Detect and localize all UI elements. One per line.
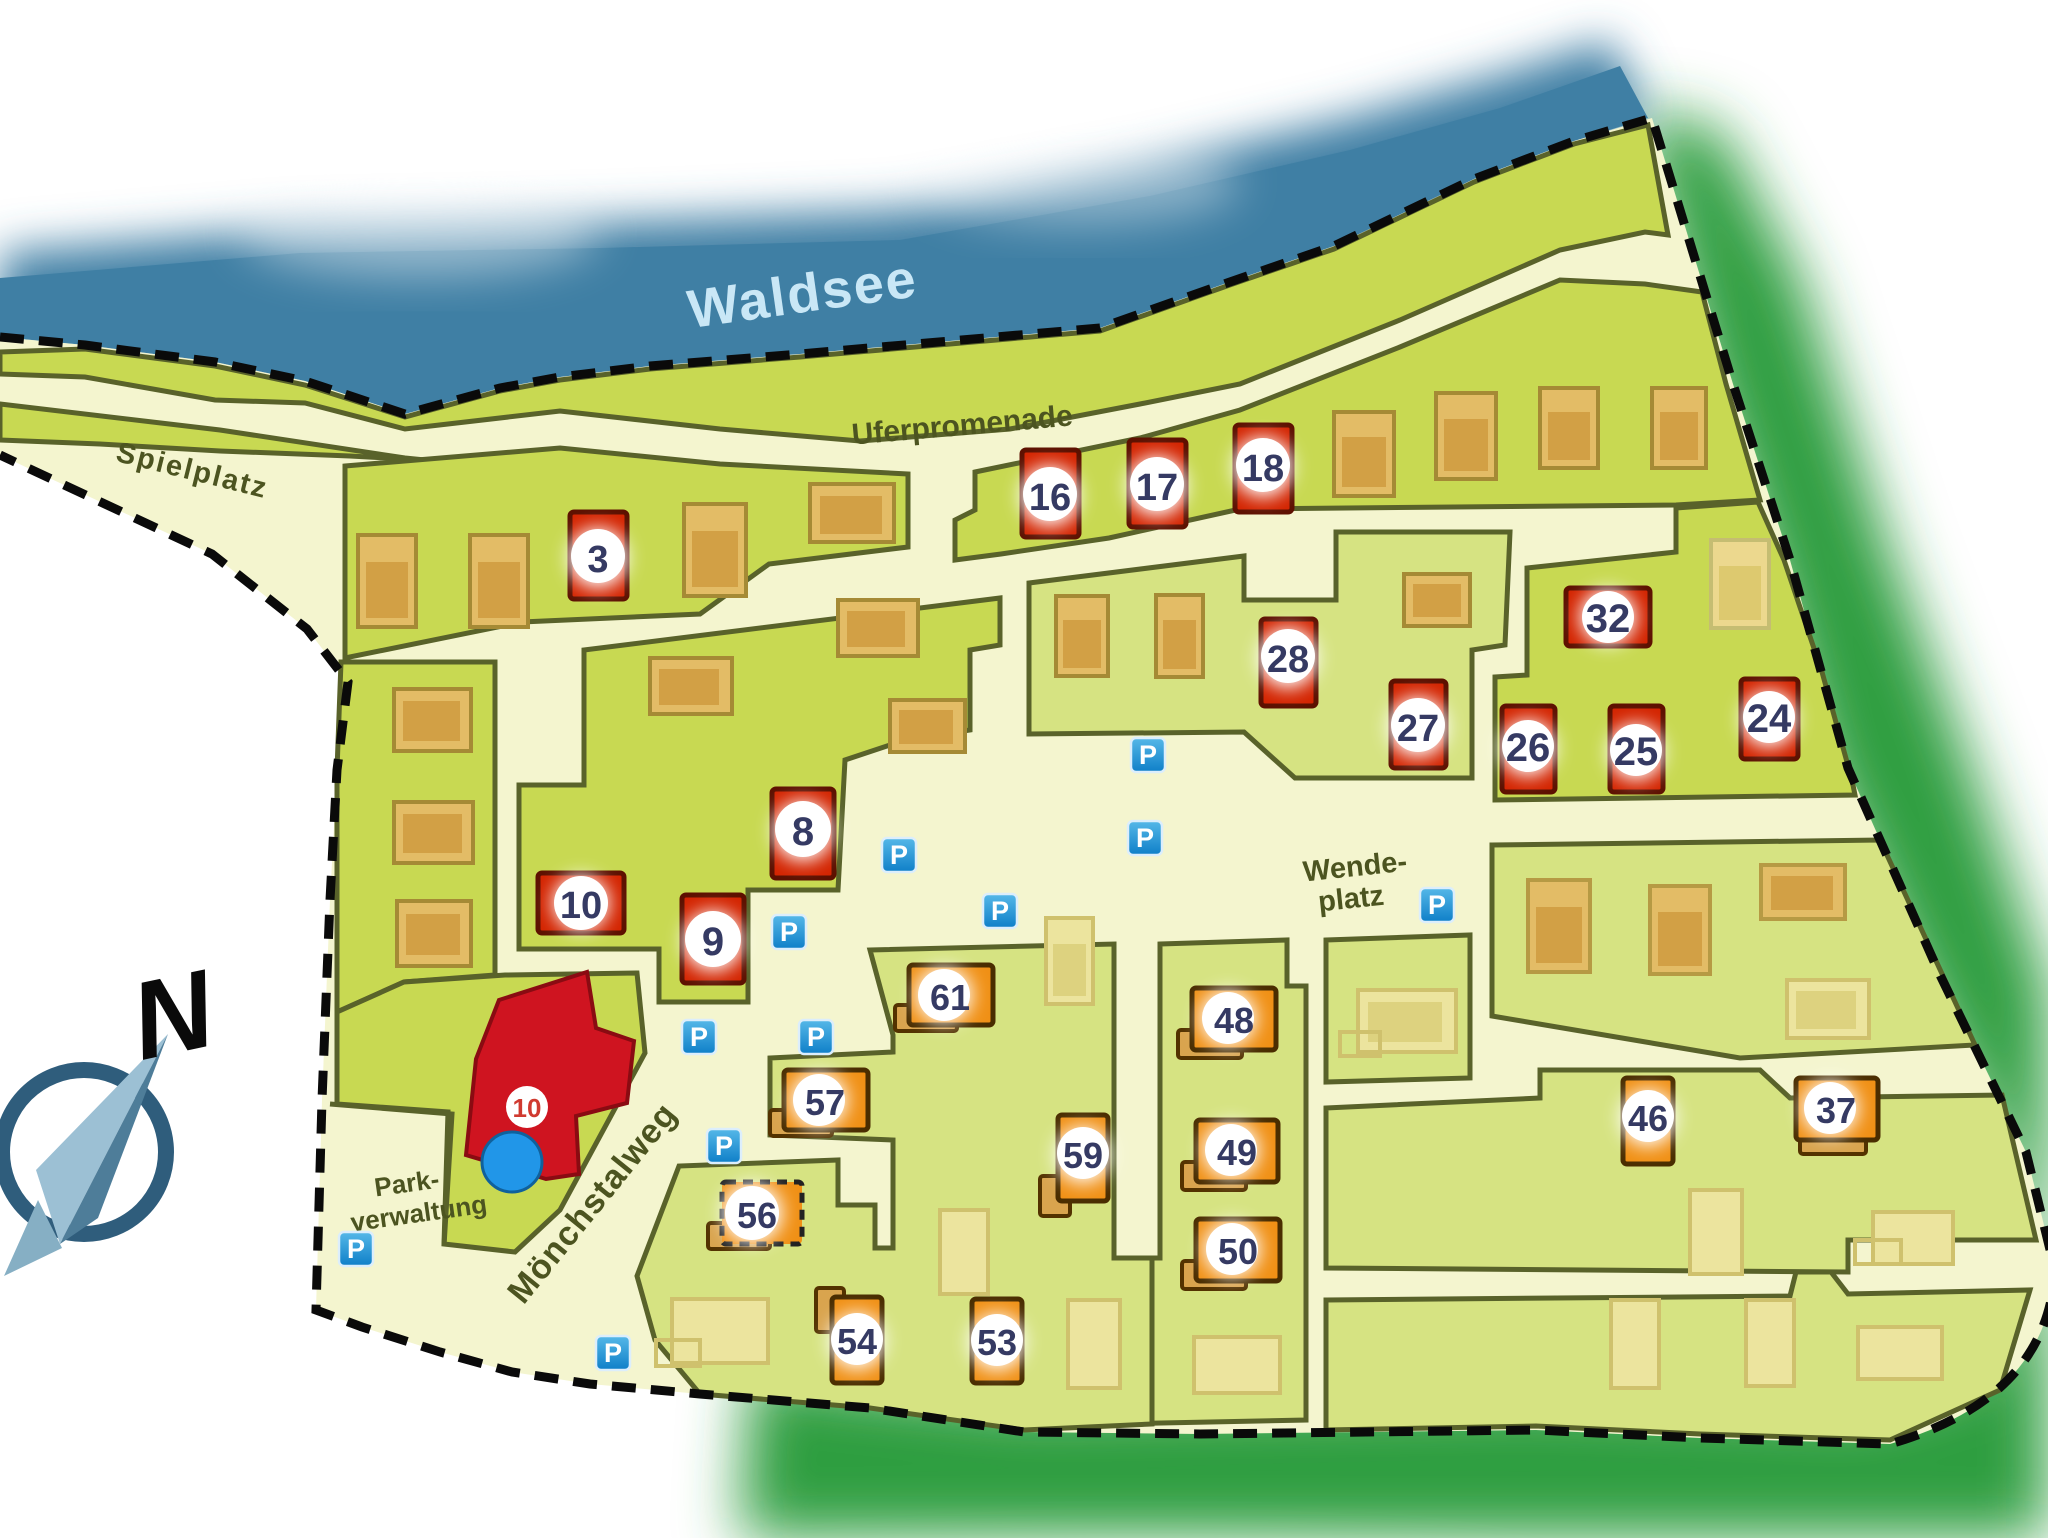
- svg-text:48: 48: [1214, 1000, 1254, 1041]
- svg-text:27: 27: [1397, 708, 1439, 750]
- svg-text:25: 25: [1614, 730, 1659, 774]
- svg-text:53: 53: [977, 1322, 1017, 1363]
- svg-text:P: P: [1428, 890, 1446, 920]
- svg-text:49: 49: [1217, 1132, 1257, 1173]
- svg-text:P: P: [347, 1234, 365, 1264]
- svg-text:56: 56: [737, 1195, 777, 1236]
- svg-text:3: 3: [587, 539, 608, 581]
- svg-text:P: P: [780, 917, 798, 947]
- svg-text:61: 61: [930, 977, 970, 1018]
- svg-text:16: 16: [1029, 477, 1071, 519]
- svg-text:54: 54: [837, 1321, 877, 1362]
- svg-text:17: 17: [1136, 467, 1178, 509]
- svg-text:59: 59: [1063, 1135, 1103, 1176]
- svg-text:46: 46: [1628, 1098, 1668, 1139]
- svg-text:P: P: [715, 1131, 733, 1161]
- svg-text:10: 10: [513, 1093, 542, 1123]
- svg-text:32: 32: [1586, 597, 1631, 641]
- svg-text:P: P: [690, 1022, 708, 1052]
- svg-text:P: P: [890, 840, 908, 870]
- svg-text:P: P: [991, 896, 1009, 926]
- svg-text:37: 37: [1816, 1090, 1856, 1131]
- svg-text:P: P: [604, 1338, 622, 1368]
- svg-text:9: 9: [702, 920, 724, 964]
- svg-text:P: P: [1136, 823, 1154, 853]
- svg-text:50: 50: [1218, 1231, 1258, 1272]
- svg-text:18: 18: [1242, 448, 1284, 490]
- svg-text:P: P: [807, 1022, 825, 1052]
- svg-text:10: 10: [560, 885, 602, 927]
- svg-text:P: P: [1139, 740, 1157, 770]
- svg-text:26: 26: [1506, 726, 1551, 770]
- svg-text:24: 24: [1747, 697, 1792, 741]
- svg-text:28: 28: [1267, 639, 1309, 681]
- svg-text:8: 8: [792, 810, 814, 854]
- svg-text:57: 57: [805, 1082, 845, 1123]
